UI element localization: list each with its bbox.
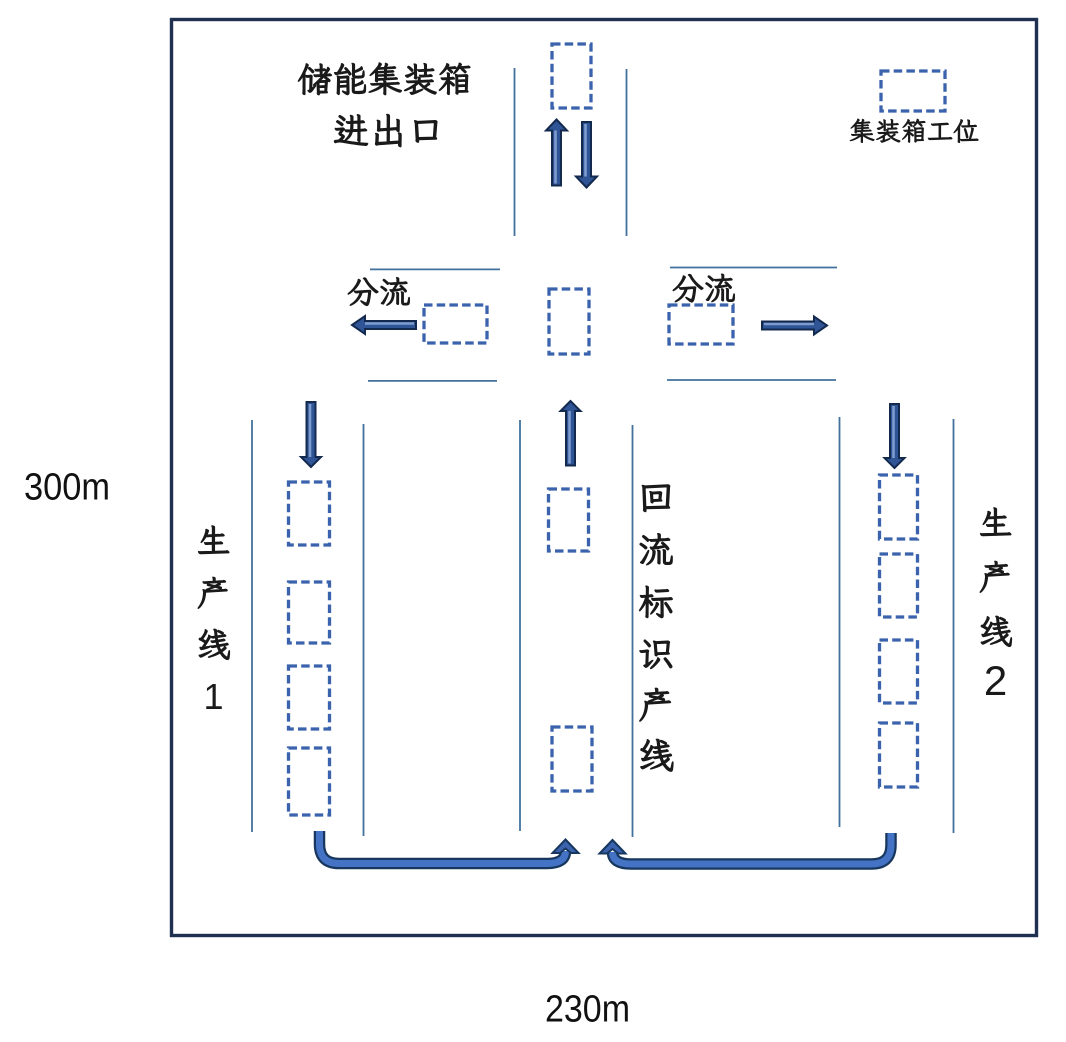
- svg-text:1: 1: [203, 676, 223, 717]
- svg-text:230m: 230m: [545, 989, 630, 1031]
- svg-text:300m: 300m: [24, 467, 110, 509]
- svg-text:2: 2: [984, 657, 1007, 704]
